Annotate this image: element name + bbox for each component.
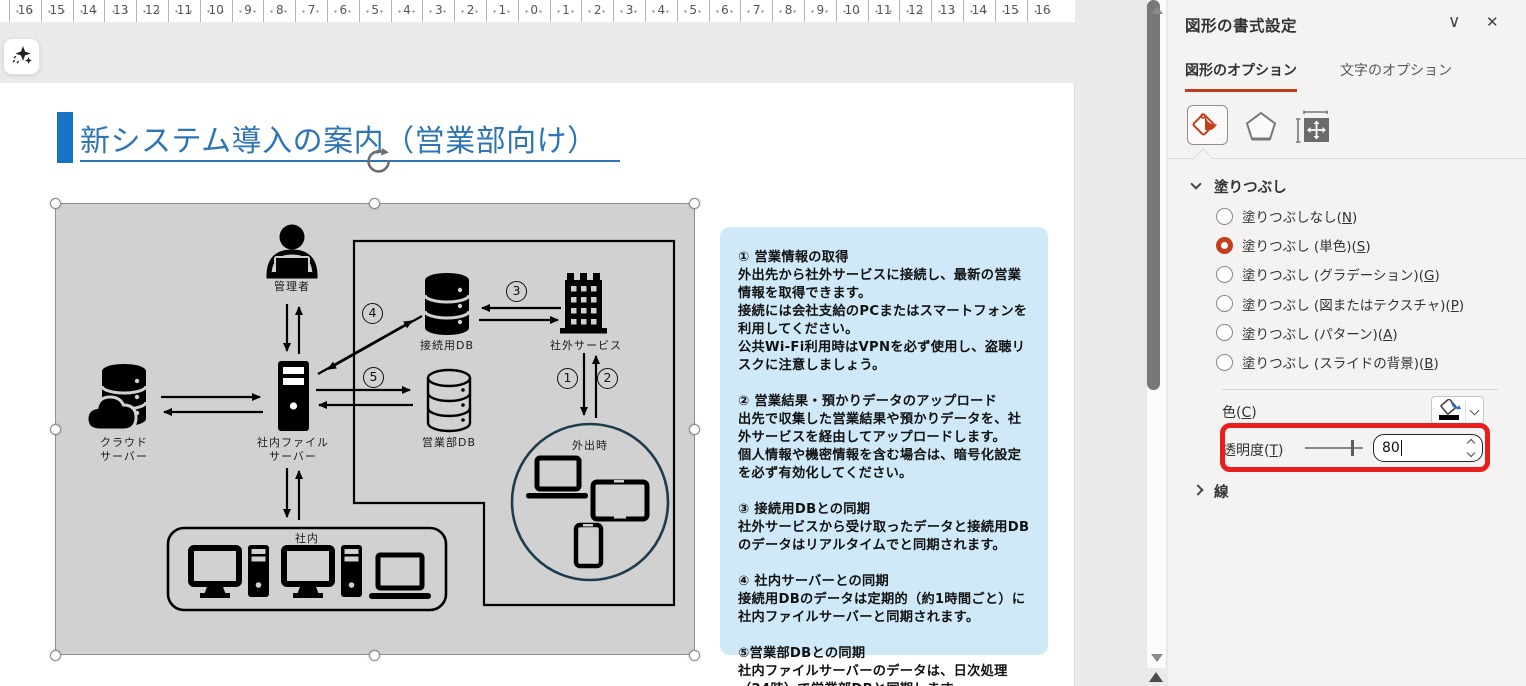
tab-text-options[interactable]: 文字のオプション xyxy=(1340,60,1452,89)
transparency-slider-thumb[interactable] xyxy=(1351,440,1354,456)
panel-title: 図形の書式設定 xyxy=(1185,14,1297,36)
ruler-number: 16 xyxy=(1027,0,1059,22)
panel-divider xyxy=(1168,158,1526,159)
resize-handle-ne[interactable] xyxy=(689,198,700,209)
rotate-handle-icon[interactable] xyxy=(363,147,393,177)
ruler-number: 4 xyxy=(645,0,677,22)
ruler-number: 15 xyxy=(995,0,1027,22)
external-service-building-icon xyxy=(560,273,607,334)
transparency-value: 80 xyxy=(1382,440,1400,456)
ruler-number: 14 xyxy=(73,0,105,22)
scrollbar-thumb[interactable] xyxy=(1147,0,1160,390)
fill-bucket-icon xyxy=(1188,106,1227,144)
step-marker-2: 2 xyxy=(597,368,618,389)
resize-handle-s[interactable] xyxy=(369,650,380,661)
size-properties-icon xyxy=(1294,109,1330,143)
ruler-number: 12 xyxy=(899,0,931,22)
fill-section-chevron-icon[interactable] xyxy=(1190,178,1201,189)
resize-handle-se[interactable] xyxy=(689,650,700,661)
color-bucket-icon xyxy=(1436,399,1462,423)
ruler-number: 11 xyxy=(168,0,200,22)
button-split xyxy=(1465,401,1466,421)
note-paragraph: ⑤営業部DBとの同期 社内ファイルサーバーのデータは、日次処理（24時）で営業部… xyxy=(738,645,1030,686)
ruler-number: 10 xyxy=(200,0,232,22)
designer-sparkle-button[interactable] xyxy=(3,38,40,75)
desktop-pc-icon xyxy=(191,545,269,598)
in-office-label: 社内 xyxy=(295,532,319,546)
ruler-number: 4 xyxy=(391,0,423,22)
diagram-shape[interactable]: 管理者 クラウド サーバー 社内ファイル サーバー 接続用DB 社外サービス 営… xyxy=(55,203,695,655)
fill-option-S[interactable]: 塗りつぶし (単色)(S) xyxy=(1216,235,1371,255)
ruler-number: 8 xyxy=(263,0,295,22)
color-label: 色(C) xyxy=(1222,402,1257,422)
divider-notch xyxy=(1193,148,1213,168)
diagram-graphics xyxy=(56,204,696,656)
transparency-input[interactable]: 80 xyxy=(1373,434,1483,462)
ruler-number: 1 xyxy=(550,0,582,22)
ruler-number: 5 xyxy=(677,0,709,22)
ruler-number: 14 xyxy=(963,0,995,22)
fill-option-N[interactable]: 塗りつぶしなし(N) xyxy=(1216,206,1357,226)
resize-handle-e[interactable] xyxy=(689,424,700,435)
effects-option-button[interactable] xyxy=(1244,110,1278,146)
text-caret xyxy=(1401,440,1402,456)
cloud-server-icon xyxy=(87,364,146,430)
fill-option-G[interactable]: 塗りつぶし (グラデーション)(G) xyxy=(1216,264,1440,284)
spinner-down-icon[interactable] xyxy=(1467,449,1475,457)
fill-option-B[interactable]: 塗りつぶし (スライドの背景)(B) xyxy=(1216,352,1439,372)
format-shape-panel: 図形の書式設定 ∨ ✕ 図形のオプション 文字のオプション xyxy=(1168,0,1526,686)
ruler-number: 15 xyxy=(41,0,73,22)
admin-label: 管理者 xyxy=(274,280,310,294)
radio-circle[interactable] xyxy=(1216,324,1233,341)
office-laptop-icon xyxy=(369,555,431,599)
ruler-number: 16 xyxy=(9,0,41,22)
resize-handle-n[interactable] xyxy=(369,198,380,209)
radio-circle[interactable] xyxy=(1216,295,1233,312)
ruler-number: 10 xyxy=(836,0,868,22)
slide-canvas[interactable]: 新システム導入の案内（営業部向け） xyxy=(0,83,1075,686)
notes-textbox[interactable]: ① 営業情報の取得 外出先から社外サービスに接続し、最新の営業情報を取得できます… xyxy=(720,227,1048,655)
fill-line-option-button[interactable] xyxy=(1187,105,1228,145)
color-dropdown-chevron-icon[interactable] xyxy=(1470,406,1480,416)
ruler-number: 3 xyxy=(422,0,454,22)
step-marker-4: 4 xyxy=(362,303,383,324)
connection-db-icon xyxy=(425,273,469,335)
spinner-up-icon[interactable] xyxy=(1467,439,1475,447)
ruler-number: 6 xyxy=(327,0,359,22)
radio-label: 塗りつぶしなし(N) xyxy=(1242,206,1357,226)
radio-circle[interactable] xyxy=(1216,208,1233,225)
horizontal-ruler[interactable]: 1615141312111098765432101234567891011121… xyxy=(0,0,1075,22)
admin-person-icon xyxy=(269,225,315,277)
out-of-office-label: 外出時 xyxy=(572,439,608,453)
cloud-server-label: クラウド サーバー xyxy=(100,436,148,464)
ruler-number: 8 xyxy=(772,0,804,22)
ruler-number: 1 xyxy=(486,0,518,22)
resize-handle-nw[interactable] xyxy=(50,198,61,209)
vertical-scrollbar[interactable] xyxy=(1146,0,1167,668)
radio-label: 塗りつぶし (パターン)(A) xyxy=(1242,323,1398,343)
note-paragraph: ④ 社内サーバーとの同期 接続用DBのデータは定期的（約1時間ごと）に社内ファイ… xyxy=(738,573,1030,627)
radio-label: 塗りつぶし (スライドの背景)(B) xyxy=(1242,352,1439,372)
step-marker-1: 1 xyxy=(557,368,578,389)
ruler-number: 7 xyxy=(740,0,772,22)
scroll-down-icon[interactable] xyxy=(1151,654,1163,662)
note-paragraph: ① 営業情報の取得 外出先から社外サービスに接続し、最新の営業情報を取得できます… xyxy=(738,249,1030,375)
transparency-slider-track[interactable] xyxy=(1305,447,1363,449)
line-section-chevron-icon[interactable] xyxy=(1192,484,1203,495)
ruler-number: 3 xyxy=(613,0,645,22)
radio-label: 塗りつぶし (図またはテクスチャ)(P) xyxy=(1242,294,1464,314)
fill-color-divider xyxy=(1222,389,1498,390)
radio-circle[interactable] xyxy=(1216,354,1233,371)
editor-workspace: 新システム導入の案内（営業部向け） xyxy=(0,22,1146,686)
ruler-number: 9 xyxy=(232,0,264,22)
file-server-icon xyxy=(278,361,309,431)
ruler-number: 13 xyxy=(931,0,963,22)
fill-option-A[interactable]: 塗りつぶし (パターン)(A) xyxy=(1216,323,1398,343)
tab-shape-options[interactable]: 図形のオプション xyxy=(1185,60,1297,92)
note-paragraph: ② 営業結果・預かりデータのアップロード 出先で収集した営業結果や預かりデータを… xyxy=(738,393,1030,483)
line-section-header[interactable]: 線 xyxy=(1214,481,1229,502)
sales-db-icon xyxy=(428,370,470,431)
radio-label: 塗りつぶし (単色)(S) xyxy=(1242,235,1371,255)
note-paragraph: ③ 接続用DBとの同期 社外サービスから受け取ったデータと接続用DBのデータはリ… xyxy=(738,501,1030,555)
ruler-number: 12 xyxy=(136,0,168,22)
previous-slide-icon[interactable] xyxy=(1149,672,1163,682)
slide-title[interactable]: 新システム導入の案内（営業部向け） xyxy=(80,116,620,162)
transparency-label: 透明度(T) xyxy=(1222,440,1284,460)
ruler-number: 6 xyxy=(709,0,741,22)
external-service-label: 社外サービス xyxy=(550,339,622,353)
fill-section-header[interactable]: 塗りつぶし xyxy=(1214,176,1287,197)
desktop-pc-icon xyxy=(284,545,362,598)
ruler-number: 13 xyxy=(104,0,136,22)
connection-db-label: 接続用DB xyxy=(420,339,474,353)
ruler-number: 7 xyxy=(295,0,327,22)
sales-db-label: 営業部DB xyxy=(422,436,476,450)
radio-label: 塗りつぶし (グラデーション)(G) xyxy=(1242,264,1440,284)
app-window: 1615141312111098765432101234567891011121… xyxy=(0,0,1526,686)
radio-circle[interactable] xyxy=(1216,237,1233,254)
resize-handle-w[interactable] xyxy=(50,424,61,435)
ruler-number: 2 xyxy=(454,0,486,22)
panel-close-icon[interactable]: ✕ xyxy=(1486,13,1499,31)
ruler-number: 9 xyxy=(804,0,836,22)
step-marker-3: 3 xyxy=(506,281,527,302)
panel-collapse-icon[interactable]: ∨ xyxy=(1448,12,1460,32)
ruler-number: 11 xyxy=(868,0,900,22)
ruler-number: 2 xyxy=(581,0,613,22)
title-accent-bar xyxy=(57,112,73,163)
file-server-label: 社内ファイル サーバー xyxy=(257,436,329,464)
scroll-up-icon[interactable] xyxy=(1151,6,1163,14)
sparkle-icon xyxy=(10,44,34,68)
radio-circle[interactable] xyxy=(1216,266,1233,283)
fill-option-P[interactable]: 塗りつぶし (図またはテクスチャ)(P) xyxy=(1216,294,1464,314)
resize-handle-sw[interactable] xyxy=(50,650,61,661)
step-marker-5: 5 xyxy=(363,367,384,388)
ruler-number: 5 xyxy=(359,0,391,22)
ruler-number: 0 xyxy=(518,0,550,22)
size-properties-option-button[interactable] xyxy=(1294,109,1330,147)
pentagon-effects-icon xyxy=(1244,110,1278,142)
fill-color-button[interactable] xyxy=(1431,396,1484,425)
transparency-spinner xyxy=(1468,440,1474,456)
